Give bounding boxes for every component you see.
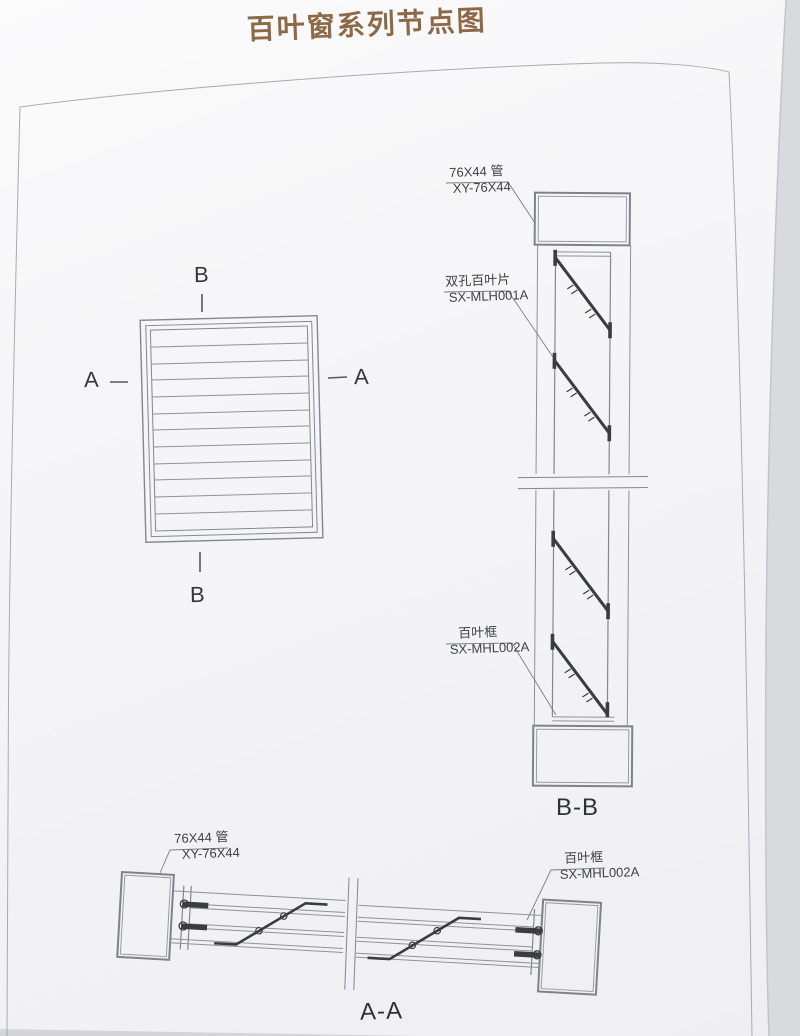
- louver-blade: [550, 634, 610, 717]
- label-aa-tube: 76X44 管 XY-76X44: [174, 829, 240, 863]
- label-aa-tube-code: XY-76X44: [175, 845, 241, 863]
- label-bb-blade: 双孔百叶片 SX-MLH001A: [445, 271, 529, 306]
- aa-right-tube: [538, 900, 601, 995]
- louver-blade: [553, 250, 613, 338]
- bb-frame-rails: [534, 245, 630, 727]
- photographed-catalog-page: { "title": "百叶窗系列节点图", "front_view": { "…: [0, 0, 800, 1036]
- section-marker-a-left: A: [84, 367, 99, 393]
- label-aa-frame: 百叶框 SX-MHL002A: [556, 848, 640, 883]
- technical-drawing-canvas: [0, 0, 800, 1036]
- bb-bottom-tube: [533, 726, 632, 787]
- front-view-louver-elevation: [140, 316, 323, 543]
- section-marker-b-bottom: B: [190, 582, 205, 608]
- label-bb-tube: 76X44 管 XY-76X44: [449, 163, 511, 197]
- label-bb-frame-code: SX-MHL002A: [447, 639, 530, 658]
- label-aa-frame-code: SX-MHL002A: [557, 864, 640, 883]
- caption-section-bb: B-B: [556, 794, 599, 822]
- aa-left-tube: [117, 872, 174, 960]
- louver-blade: [552, 353, 612, 441]
- section-marker-b-top: B: [194, 262, 209, 288]
- label-bb-frame: 百叶框 SX-MHL002A: [446, 623, 530, 658]
- caption-section-aa: A-A: [360, 997, 404, 1026]
- label-bb-tube-code: XY-76X44: [450, 179, 512, 197]
- aa-slat-lines-left: [170, 891, 346, 953]
- page-edges: [0, 0, 800, 1036]
- label-bb-blade-code: SX-MLH001A: [446, 287, 529, 306]
- sheet-border-frame: [7, 63, 752, 1036]
- section-aa-drawing: [116, 865, 602, 1004]
- bb-break-lines: [518, 476, 648, 490]
- louver-blade: [551, 531, 611, 619]
- bb-top-tube: [535, 193, 630, 246]
- louver-slat-lines: [151, 343, 312, 514]
- section-marker-a-right: A: [354, 364, 369, 390]
- aa-hole-circles: [178, 900, 543, 959]
- aa-break-lines: [343, 878, 360, 990]
- bb-louver-blades: [550, 250, 612, 717]
- section-bb-drawing: [516, 193, 650, 787]
